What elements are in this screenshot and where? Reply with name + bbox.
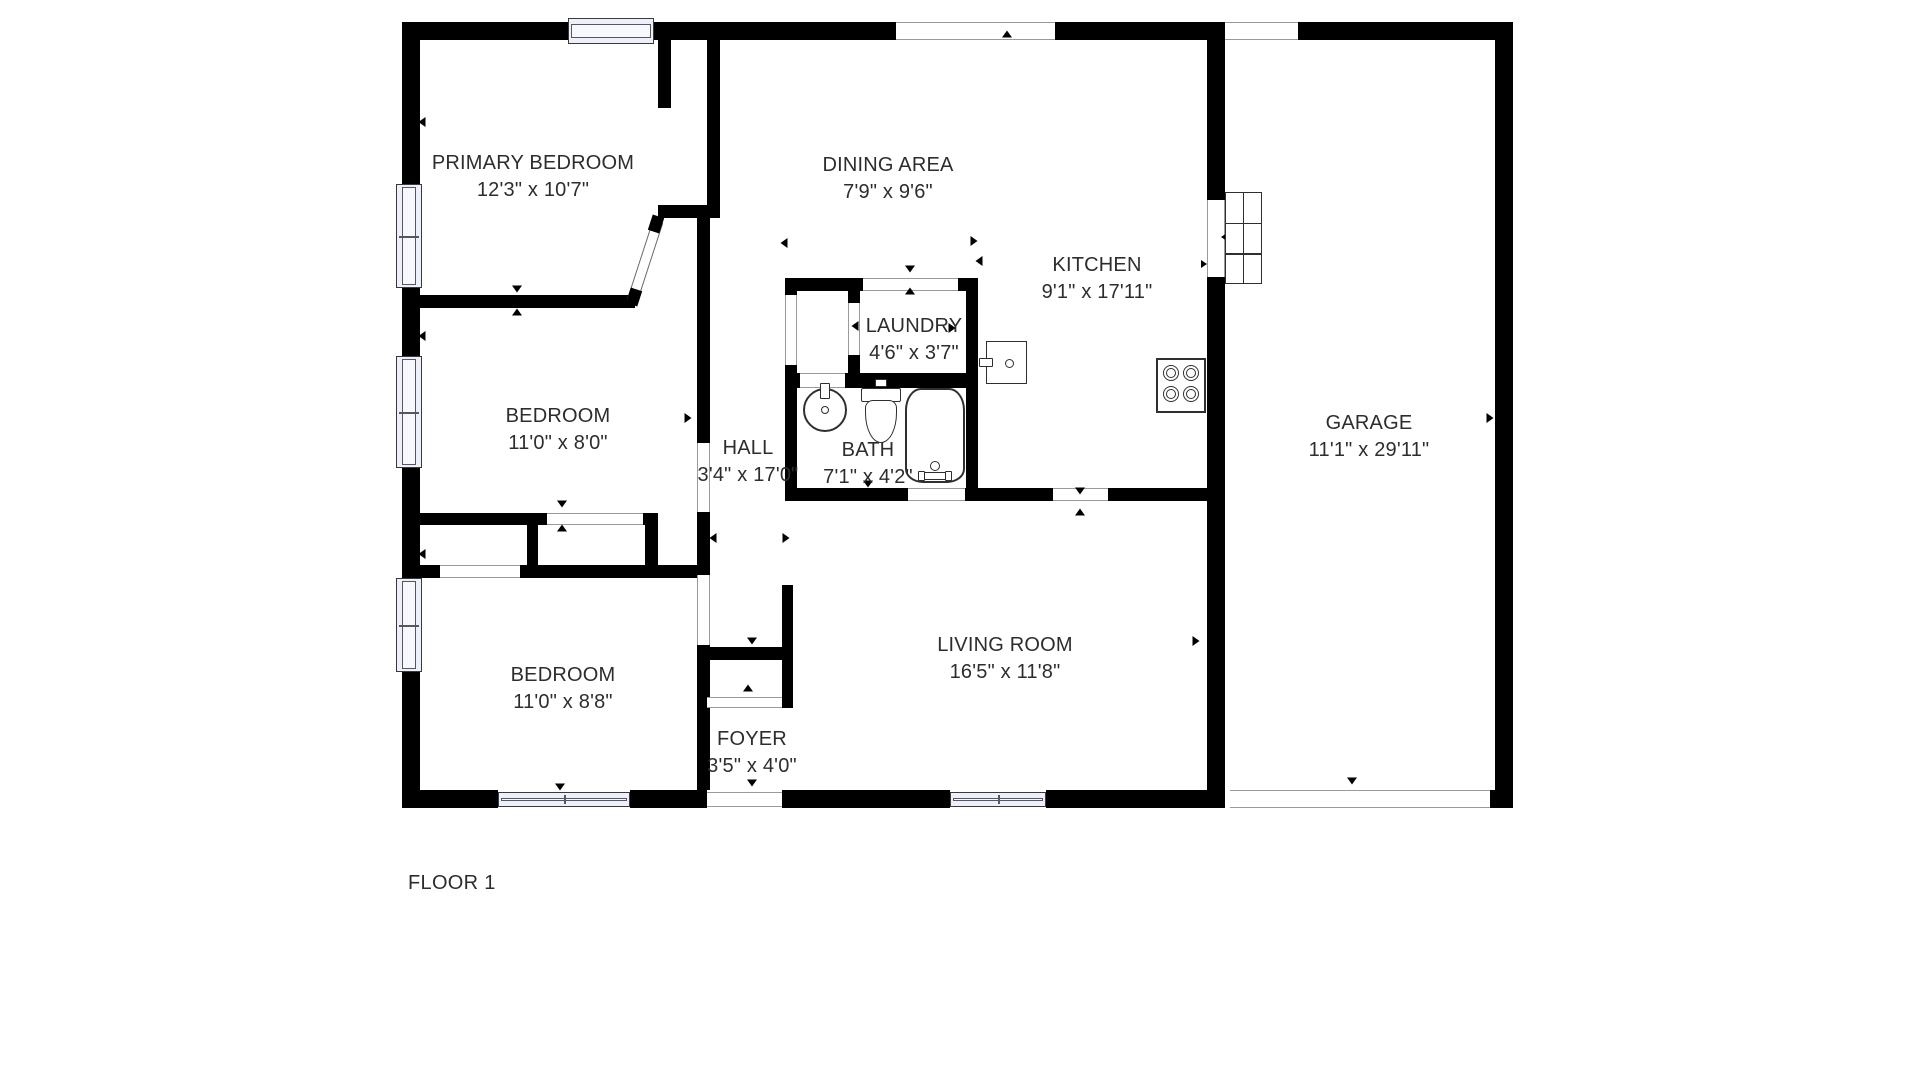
- door-opening: [1225, 22, 1298, 40]
- door-opening: [908, 488, 965, 501]
- room-name: GARAGE: [1309, 410, 1430, 437]
- opening-marker-right: [783, 533, 790, 543]
- wall: [848, 278, 860, 303]
- window: [498, 792, 630, 807]
- window: [396, 184, 422, 288]
- wall: [402, 790, 498, 808]
- door-opening: [707, 697, 782, 708]
- wall: [1207, 277, 1225, 808]
- room-name: DINING AREA: [822, 152, 953, 179]
- opening-marker-down: [747, 780, 757, 787]
- wall: [630, 790, 707, 808]
- room-name: HALL: [698, 435, 799, 462]
- opening-marker-left: [852, 321, 859, 331]
- floor-plan-canvas: FLOOR 1 PRIMARY BEDROOM12'3" x 10'7"DINI…: [0, 0, 1920, 1080]
- room-label-primary-bedroom: PRIMARY BEDROOM12'3" x 10'7": [432, 150, 634, 204]
- room-label-laundry: LAUNDRY4'6" x 3'7": [866, 313, 963, 367]
- room-name: PRIMARY BEDROOM: [432, 150, 634, 177]
- room-name: BEDROOM: [511, 662, 616, 689]
- opening-marker-down: [1075, 488, 1085, 495]
- wall: [1108, 488, 1225, 501]
- wall: [402, 295, 635, 308]
- room-label-kitchen: KITCHEN9'1" x 17'11": [1042, 252, 1153, 306]
- room-name: LAUNDRY: [866, 313, 963, 340]
- opening-marker-right: [1487, 413, 1494, 423]
- room-dimensions: 3'5" x 4'0": [707, 753, 797, 780]
- washer-valve-icon: [979, 358, 993, 367]
- opening-marker-up: [905, 288, 915, 295]
- opening-marker-right: [971, 236, 978, 246]
- window-mullion: [399, 412, 419, 414]
- opening-marker-up: [512, 309, 522, 316]
- wall: [1495, 22, 1513, 808]
- wall: [658, 205, 720, 218]
- window-pane: [571, 24, 651, 38]
- room-dimensions: 7'1" x 4'2": [823, 464, 913, 491]
- door-jamb: [626, 288, 642, 307]
- wall: [658, 40, 671, 108]
- opening-marker-left: [710, 533, 717, 543]
- wall: [1207, 22, 1225, 200]
- room-dimensions: 12'3" x 10'7": [432, 177, 634, 204]
- garage-steps-line: [1226, 223, 1261, 225]
- opening-marker-right: [685, 413, 692, 423]
- room-label-garage: GARAGE11'1" x 29'11": [1309, 410, 1430, 464]
- opening-marker-up: [743, 685, 753, 692]
- room-label-bath: BATH7'1" x 4'2": [823, 437, 913, 491]
- stove-burner-icon: [1186, 389, 1196, 399]
- wall: [707, 22, 720, 218]
- garage-steps-line: [1243, 193, 1245, 283]
- stove-burner-icon: [1166, 389, 1176, 399]
- opening-marker-down: [555, 784, 565, 791]
- door-opening: [896, 22, 1055, 40]
- garage-steps-line: [1226, 253, 1261, 255]
- room-label-bedroom-lower: BEDROOM11'0" x 8'8": [511, 662, 616, 716]
- wall: [1490, 790, 1513, 808]
- opening-marker-left: [976, 256, 983, 266]
- room-label-dining-area: DINING AREA7'9" x 9'6": [822, 152, 953, 206]
- room-dimensions: 4'6" x 3'7": [866, 340, 963, 367]
- door-jamb: [648, 215, 664, 234]
- room-label-hall: HALL3'4" x 17'0": [698, 435, 799, 489]
- room-name: BEDROOM: [506, 403, 611, 430]
- room-name: FOYER: [707, 726, 797, 753]
- window: [950, 792, 1046, 807]
- opening-marker-up: [1075, 509, 1085, 516]
- room-dimensions: 11'0" x 8'0": [506, 430, 611, 457]
- wall: [1055, 22, 1225, 40]
- wall: [965, 488, 978, 501]
- opening-marker-down: [747, 638, 757, 645]
- bathtub-drain-icon: [930, 461, 940, 471]
- door-opening: [707, 792, 782, 807]
- room-dimensions: 9'1" x 17'11": [1042, 279, 1153, 306]
- room-name: BATH: [823, 437, 913, 464]
- wall: [1298, 22, 1513, 40]
- door-opening: [1230, 790, 1490, 808]
- room-name: LIVING ROOM: [937, 632, 1073, 659]
- wall: [1046, 790, 1225, 808]
- door-opening: [785, 295, 797, 365]
- stove-burner-icon: [1186, 368, 1196, 378]
- wall: [782, 790, 950, 808]
- wall: [978, 488, 1053, 501]
- sink-drain-icon: [821, 406, 829, 414]
- room-label-foyer: FOYER3'5" x 4'0": [707, 726, 797, 780]
- window: [396, 578, 422, 672]
- wall: [785, 373, 800, 388]
- floor-label: FLOOR 1: [408, 872, 496, 895]
- window-mullion: [564, 795, 566, 804]
- room-dimensions: 16'5" x 11'8": [937, 659, 1073, 686]
- wall: [966, 278, 978, 500]
- opening-marker-down: [905, 266, 915, 273]
- opening-marker-down: [1347, 778, 1357, 785]
- room-label-bedroom-middle: BEDROOM11'0" x 8'0": [506, 403, 611, 457]
- stove-burner-icon: [1166, 368, 1176, 378]
- bathtub-faucet-cap-icon: [918, 471, 925, 481]
- bathtub-faucet-cap-icon: [945, 471, 952, 481]
- room-dimensions: 11'1" x 29'11": [1309, 437, 1430, 464]
- opening-marker-up: [510, 30, 520, 37]
- opening-marker-down: [512, 286, 522, 293]
- opening-marker-up: [557, 525, 567, 532]
- wall: [402, 22, 568, 40]
- opening-marker-left: [419, 117, 426, 127]
- wall: [785, 278, 797, 295]
- opening-marker-up: [1002, 31, 1012, 38]
- opening-marker-right: [1201, 260, 1207, 268]
- toilet-button-icon: [875, 379, 887, 387]
- room-dimensions: 3'4" x 17'0": [698, 462, 799, 489]
- opening-marker-down: [557, 501, 567, 508]
- opening-marker-right: [1193, 636, 1200, 646]
- room-name: KITCHEN: [1042, 252, 1153, 279]
- stove-icon: [1156, 358, 1206, 413]
- opening-marker-left: [419, 331, 426, 341]
- room-dimensions: 7'9" x 9'6": [822, 179, 953, 206]
- opening-marker-down: [673, 211, 683, 218]
- wall: [697, 647, 793, 660]
- opening-marker-left: [419, 549, 426, 559]
- sink-faucet-icon: [820, 383, 830, 399]
- window: [396, 356, 422, 468]
- window-mullion: [399, 625, 419, 627]
- wall: [845, 373, 966, 388]
- wall: [697, 218, 710, 443]
- opening-marker-down: [1347, 26, 1357, 33]
- window-mullion: [998, 795, 1000, 804]
- window: [568, 18, 654, 44]
- window-mullion: [399, 236, 419, 238]
- room-dimensions: 11'0" x 8'8": [511, 689, 616, 716]
- door-opening: [697, 575, 710, 645]
- door-opening: [547, 513, 643, 525]
- washer-knob-icon: [1005, 359, 1014, 368]
- opening-marker-left: [781, 238, 788, 248]
- room-label-living-room: LIVING ROOM16'5" x 11'8": [937, 632, 1073, 686]
- door-opening: [440, 565, 520, 578]
- wall: [782, 585, 793, 708]
- wall: [654, 22, 896, 40]
